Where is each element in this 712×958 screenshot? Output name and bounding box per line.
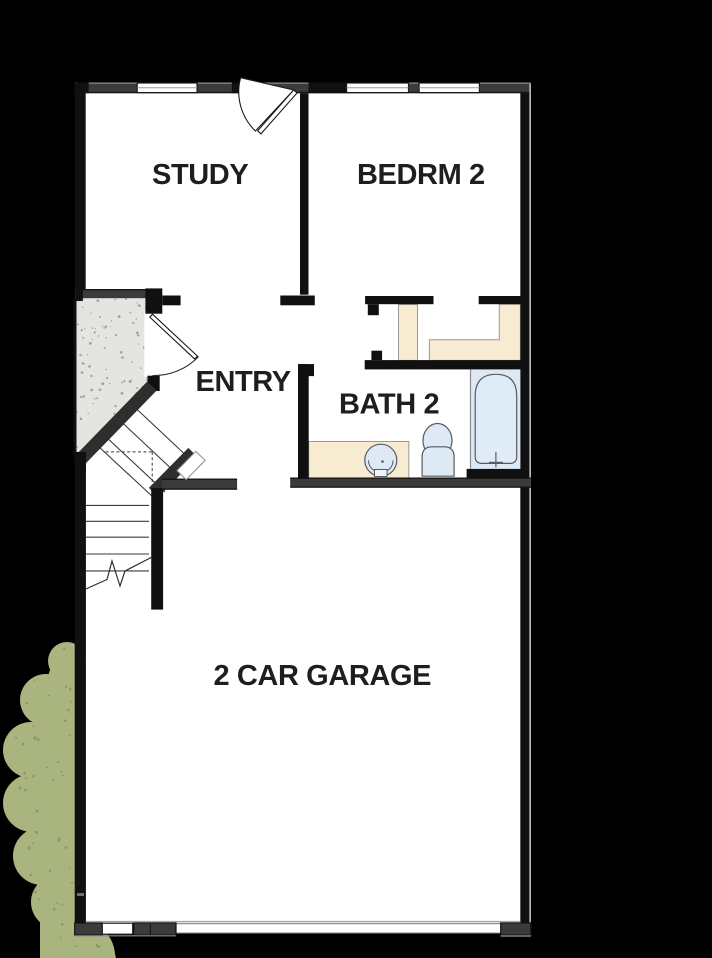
svg-text:STUDY: STUDY	[152, 159, 248, 191]
svg-text:2 CAR GARAGE: 2 CAR GARAGE	[214, 660, 432, 692]
svg-text:BATH 2: BATH 2	[339, 389, 439, 421]
svg-text:BEDRM 2: BEDRM 2	[357, 159, 485, 191]
svg-text:ENTRY: ENTRY	[196, 366, 291, 398]
